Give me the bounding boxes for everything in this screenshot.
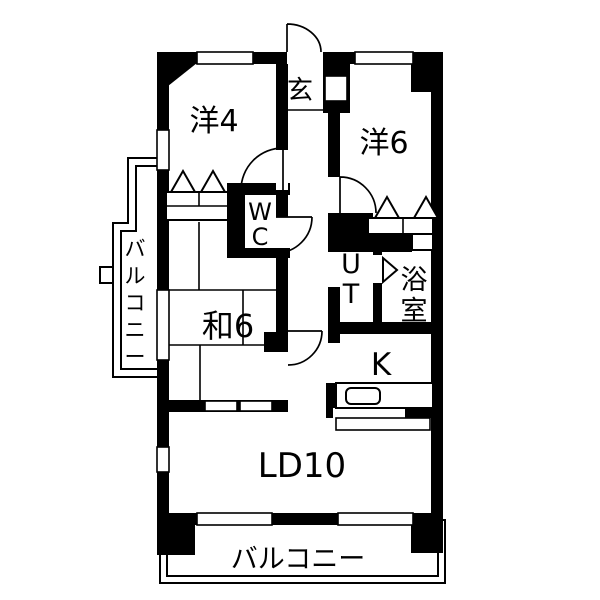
window-bottom-ld-1 <box>197 513 272 525</box>
label-bath-line2: 室 <box>401 296 428 327</box>
label-western-room-6: 洋6 <box>359 126 408 161</box>
window-top-w6 <box>355 52 413 64</box>
kitchen-sink-icon <box>346 388 380 404</box>
floorplan-page: 玄 洋4 洋6 W C U T 浴 室 和6 K LD10 バルコニー バ ル … <box>0 0 600 600</box>
pillar-bottom-left <box>157 513 195 555</box>
label-balcony-left: バ ル コ ニ ー <box>125 237 146 369</box>
kitchen-fixtures <box>336 383 433 430</box>
label-balcony-left-char: ニ <box>125 318 146 342</box>
label-entrance: 玄 <box>287 76 313 106</box>
label-wc-line2: C <box>252 223 269 251</box>
label-balcony-left-char: ー <box>125 345 146 369</box>
window-left-ld <box>157 447 169 472</box>
wall-right <box>431 52 443 525</box>
label-balcony-left-char: コ <box>125 291 146 315</box>
opening-w6 <box>328 177 340 213</box>
wall-kitchen-ld <box>405 408 433 418</box>
sliding-door-j6-2 <box>240 401 272 411</box>
label-wc-line1: W <box>248 198 272 226</box>
closet-w6-shelf <box>368 218 433 234</box>
wall-hall-left-mid <box>276 195 288 217</box>
window-left-j6 <box>157 290 169 360</box>
opening-bath <box>373 255 382 283</box>
closet-w6-step <box>412 234 433 250</box>
opening-w4 <box>276 150 288 190</box>
opening-wc <box>276 217 288 248</box>
window-top-w4 <box>197 52 253 64</box>
window-left-w4 <box>157 130 169 170</box>
pillar-top-right <box>411 52 443 92</box>
wall-wc-left <box>227 183 245 255</box>
wall-hall-left-lower <box>276 248 288 332</box>
kitchen-low-counter <box>336 418 430 430</box>
pillar-bottom-right <box>411 513 443 553</box>
sliding-door-j6-1 <box>205 401 237 411</box>
label-balcony-bottom: バルコニー <box>231 544 365 575</box>
wall-hall-right-upper <box>328 113 340 177</box>
label-ut-line2: T <box>342 279 360 310</box>
window-bottom-ld-2 <box>338 513 413 525</box>
label-bath-line1: 浴 <box>401 265 428 296</box>
label-ut-line1: U <box>341 249 361 280</box>
label-japanese-room-6: 和6 <box>202 307 254 345</box>
wall-hall-right-mid <box>328 213 373 252</box>
label-living-dining: LD10 <box>258 446 346 486</box>
label-balcony-left-char: ル <box>125 264 146 288</box>
wall-hall-right-lower <box>328 287 340 343</box>
opening-entrance <box>287 52 323 64</box>
label-western-room-4: 洋4 <box>189 104 238 139</box>
label-kitchen: K <box>371 347 392 383</box>
opening-kitchen <box>328 343 340 383</box>
opening-ut <box>328 252 340 287</box>
label-balcony-left-char: バ <box>125 237 146 261</box>
shoe-cabinet <box>325 76 347 101</box>
floorplan-svg: 玄 洋4 洋6 W C U T 浴 室 和6 K LD10 バルコニー バ ル … <box>0 0 600 600</box>
wall-stub-j6 <box>264 332 288 352</box>
opening-kitchen-ld <box>333 408 405 418</box>
